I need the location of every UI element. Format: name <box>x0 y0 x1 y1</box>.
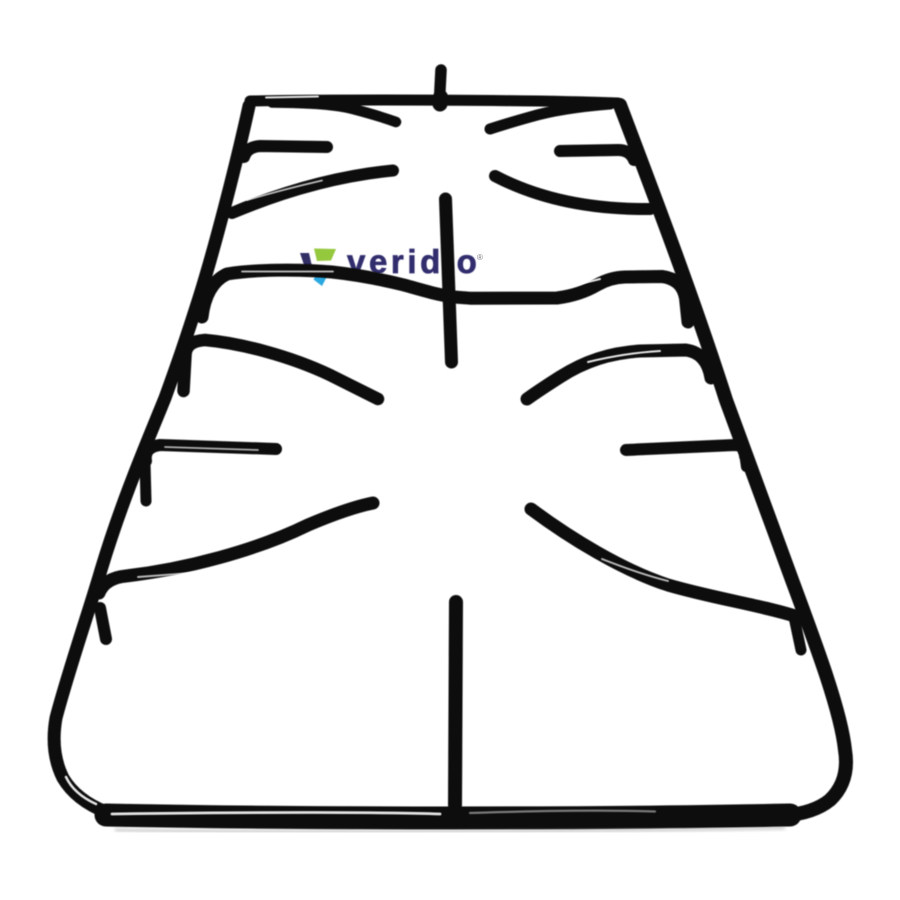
svg-text:®: ® <box>477 253 483 262</box>
